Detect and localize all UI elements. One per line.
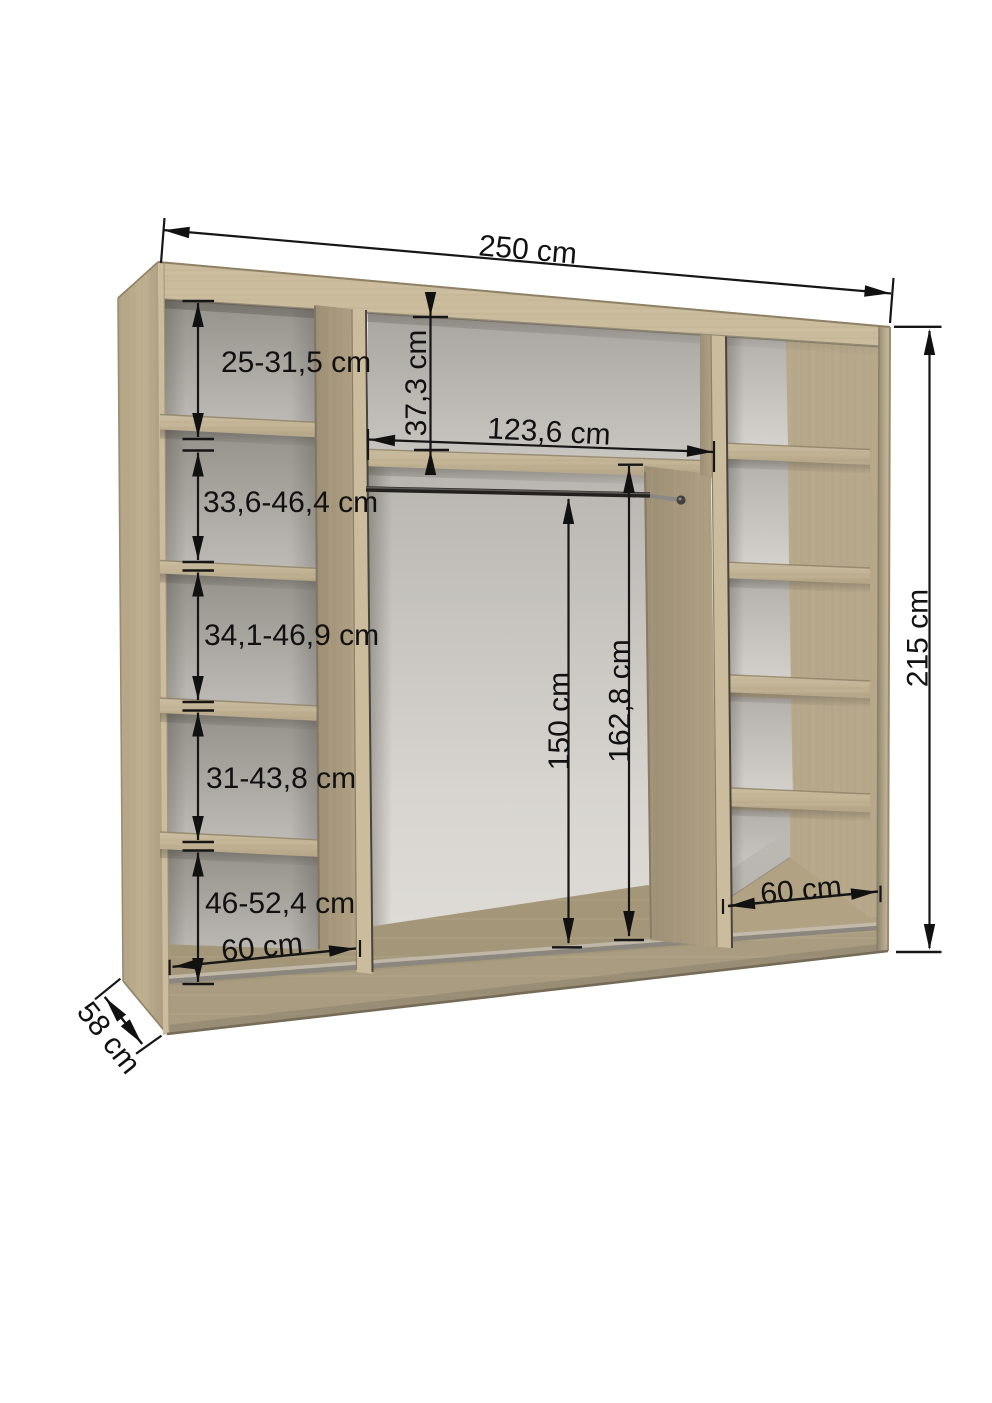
svg-text:37,3 cm: 37,3 cm <box>400 330 433 437</box>
svg-text:162,8 cm: 162,8 cm <box>604 639 637 762</box>
svg-text:31-43,8 cm: 31-43,8 cm <box>206 762 356 795</box>
svg-text:150 cm: 150 cm <box>543 672 576 770</box>
svg-text:25-31,5 cm: 25-31,5 cm <box>221 346 371 379</box>
svg-text:46-52,4 cm: 46-52,4 cm <box>205 887 355 920</box>
svg-text:215 cm: 215 cm <box>902 589 935 687</box>
svg-text:33,6-46,4 cm: 33,6-46,4 cm <box>203 486 378 519</box>
svg-text:123,6 cm: 123,6 cm <box>487 412 612 451</box>
svg-text:34,1-46,9 cm: 34,1-46,9 cm <box>204 619 379 652</box>
